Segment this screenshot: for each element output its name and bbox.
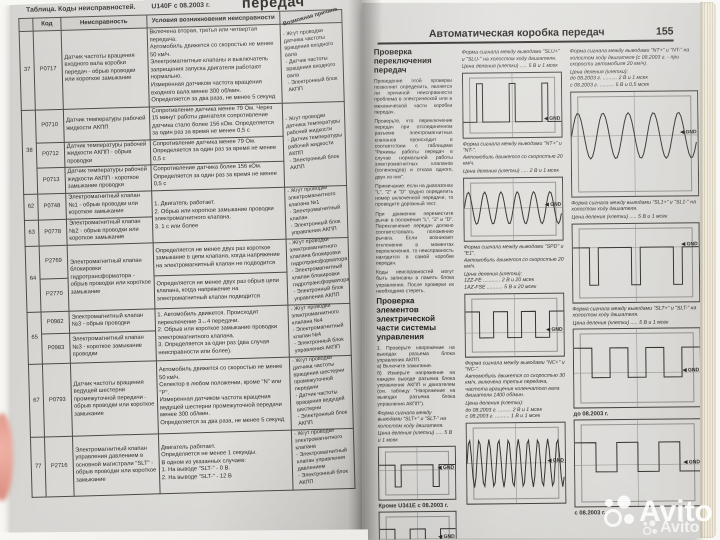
cell-cond: 1. Двигатель работает. 2. Обрыв или коро… [151,187,286,243]
cell-fault: Датчик температуры рабочей жидкости АКПП [63,107,150,143]
paragraph: Проверьте, что переключение передач при … [374,118,453,181]
fault-table-body: 37P0717Датчик частоты вращения входного … [19,23,355,497]
cell-fault: Электромагнитный клапан №3 - обрыв прово… [69,309,155,333]
cell-causes: - Жгут проводки датчика частоты вращения… [289,356,353,431]
gnd-label: ◀ GND [438,534,454,539]
cell-cond: Сопротивление датчика менее 79 Ом. Опред… [150,136,284,165]
cell-fault: Электромагнитный клапан №3 - короткое за… [69,331,156,364]
oscillogram-caption: Форма сигнала между выводами "SLT+" и "S… [572,305,700,319]
oscillogram-caption: Форма сигнала между выводами "NC+" и "NC… [465,359,565,399]
oscillogram-scale: Цена деления (клетки) ..... 5 В и 1 мсек [571,213,699,221]
cell-num: 63 [24,220,39,246]
oscillogram-caption: Форма сигнала между выводами "SLU+" и "S… [462,49,562,63]
cell-code: P0712 [36,142,65,168]
cell-code: P0983 [42,333,71,364]
cell-num: 65 [27,312,42,364]
cell-cond: Сопротивление датчика более 156 кОм. Опр… [151,162,285,191]
table-caption-label: Таблица. Коды неисправностей. [26,4,136,14]
oscillogram-column-2: Форма сигнала между выводами "SLU+" и "S… [462,47,567,539]
cell-code: P0717 [33,31,63,110]
cell-causes: - Жгут проводки электромагнитного клапан… [291,429,355,490]
paragraph: При движении переместите рычаг в положен… [375,210,454,267]
oscillogram-caption: Форма сигнала между выводами "NT+" и "NT… [463,140,563,167]
paragraph: Коды неисправностей могут быть записаны … [376,269,454,295]
oscillogram-sl1: ◀ GND [572,222,701,303]
paragraph-note: Примечание: если на диапазонах "L", "2" … [375,183,453,209]
cell-code: P2769 [39,245,68,279]
cell-code: P0710 [35,109,64,143]
gnd-label: ◀ GND [684,460,700,465]
cell-fault: Электромагнитный клапан №2 - обрыв прово… [66,217,152,245]
oscillogram-early: ◀ GND [574,418,703,507]
oscillogram-date-label-cut: с 08.2003 г. [575,509,703,516]
cell-code: P0793 [42,364,72,438]
cell-fault: Датчик частоты вращения входного вала ко… [61,28,149,109]
cell-causes: - Жгут проводки электромагнитного клапан… [285,185,348,239]
gnd-label: ◀ GND [681,242,697,247]
page-header: Автоматическая коробка передач 155 [377,25,673,44]
oscillogram-nt-late: ◀ GND [570,90,699,197]
left-page: Таблица. Коды неисправностей.U140F с 08.… [10,0,362,533]
cell-causes: - Жгут проводки датчика частоты вращения… [280,23,344,103]
cell-code: P0982 [41,311,70,333]
cell-causes: - Жгут проводки датчика температуры рабо… [282,101,346,187]
oscillogram-nc: ◀ GND [466,422,567,505]
oscillogram-scale: Цена деления (клетки) ..... 2 В и 1 мсек [463,167,563,175]
cell-cond: 1. Автомобиль движется. Происходит перек… [155,305,290,361]
oscillogram-scale: Цена деления (клетки) ..... 5 В и 1 мсек [462,63,562,71]
cell-code: P0778 [38,219,67,246]
left-page-content: Таблица. Коды неисправностей.U140F с 08.… [2,0,369,537]
cell-num: 62 [24,194,39,220]
cell-cond: Автомобиль движется со скоростью не мене… [156,357,291,434]
cell-cond: Сопротивление датчика менее 79 Ом. Через… [149,103,283,140]
section-heading-shift-check: Проверка переключения передач [374,48,452,76]
open-book: Таблица. Коды неисправностей.U140F с 08.… [10,0,716,540]
gnd-label: ◀ GND [680,131,696,136]
oscillogram-slt-u341e: ◀ GND [379,510,457,539]
table-caption: Таблица. Коды неисправностей.U140F с 08.… [26,2,210,14]
gnd-label: ◀ GND [548,459,564,464]
page-header-title: Автоматическая коробка передач [377,26,656,41]
fault-code-table: Код Неисправность Условия возникновения … [18,9,355,497]
cell-cond: Двигатель работает. Определяется не мене… [158,431,293,494]
cell-code: P2716 [44,437,74,497]
oscillogram-slt-except-u341e: ◀ GND [378,445,457,500]
paragraph-procedure: 1. Проверьте напряжение на выводах разъе… [377,345,456,408]
oscillogram-caption: Форма сигнала между выводами "SLT+" и "S… [377,409,455,429]
cell-fault: Датчик температуры рабочей жидкости АКПП… [64,140,150,168]
oscillogram-spd: ◀ GND [464,292,565,357]
gnd-label: ◀ GND [683,368,699,373]
cell-fault: Электромагнитный клапан управления давле… [72,434,159,495]
oscillogram-slt: ◀ GND [573,327,702,408]
oscillogram-caption: Форма сигнала между выводами "SPD" и "E1… [464,243,564,270]
cell-fault: Электромагнитный клапан блокировки гидро… [67,243,155,312]
table-caption-model: U140F с 08.2003 г. [151,2,210,11]
cell-cond: Определяется не менее двух раз обрыв цеп… [154,272,288,309]
col-header-code: Код [33,17,61,31]
cell-fault: Датчик температуры рабочей жидкости АКПП… [65,165,151,193]
gnd-label: ◀ GND [546,328,562,333]
cell-code: P0713 [37,168,66,194]
col-header-num [19,18,33,32]
page-number: 155 [656,25,674,37]
right-page: Автоматическая коробка передач 155 Прове… [362,3,700,538]
oscillogram-model-label: Кроме U341E с 08.2003 г. [378,502,456,509]
text-column-1: Проверка переключения передач Проведение… [374,48,457,540]
table-row: 67P0793Датчик частоты вращения ведущей ш… [28,356,353,438]
oscillogram-column-3: Форма сигнала между выводами "NT+" и "NT… [570,45,703,537]
cell-causes: - Жгут проводки электромагнитного клапан… [286,237,350,305]
cell-fault: Датчик частоты вращения ведущей шестерни… [70,361,158,437]
oscillogram-caption: Форма сигнала между выводами "NT+" и "NT… [570,47,698,68]
oscillogram-scale: Цена деления (клетки) ..... 5 В и 1 мсек [573,319,701,327]
page-columns: Проверка переключения передач Проведение… [374,45,689,539]
gnd-label: ◀ GND [544,117,560,122]
cell-causes: - Жгут проводки электромагнитного клапан… [288,304,351,358]
oscillogram-slu: ◀ GND [462,71,563,138]
oscillogram-scale: Цена деления (клетки) ..... 5 В и 1 мсек [378,430,456,444]
cell-fault: Электромагнитный клапан №1 - обрыв прово… [66,191,152,219]
gnd-label: ◀ GND [438,465,454,470]
oscillogram-nt: ◀ GND [463,176,564,241]
cell-code: P0748 [38,193,67,220]
section-heading-electrical-check: Проверка элементов электрической части с… [376,297,454,343]
table-row: 77P2716Электромагнитный клапан управлени… [30,429,355,497]
oscillogram-scale: Цена деления (клетки): 1ZZ-FE ..........… [464,270,564,291]
page-edges [700,2,716,538]
oscillogram-caption: Форма сигнала между выводами "SL1+" и "S… [571,199,699,213]
book-photo: Таблица. Коды неисправностей.U140F с 08.… [0,0,720,540]
gnd-label: ◀ GND [545,203,561,208]
oscillogram-scale: Цена деления (клетки): до 08.2003 г. ...… [465,399,565,420]
cell-code: P2770 [40,278,69,312]
oscillogram-date-label: до 08.2003 г. [573,410,701,417]
right-page-content: Автоматическая коробка передач 155 Прове… [359,1,703,540]
table-row: 37P0717Датчик частоты вращения входного … [19,23,344,110]
cell-cond: Включена вторая, третья или четвертая пе… [147,25,282,107]
paragraph: Проведение этой проверки позволяет опред… [374,78,452,116]
cell-cond: Определяется не менее двух раз короткое … [153,239,287,276]
oscillogram-scale: Цена деления (клетки): до 08.2003 г. ...… [570,68,698,90]
